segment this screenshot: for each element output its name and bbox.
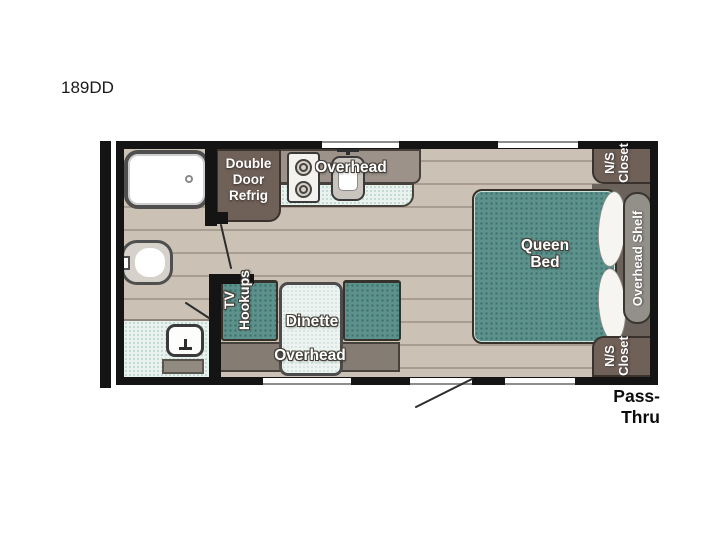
ns-closet-line: Closet xyxy=(617,142,631,184)
overhead-shelf-label: Overhead Shelf xyxy=(630,206,645,311)
tv-hookups-label: TV Hookups xyxy=(222,270,252,330)
ns-closet-line: N/S xyxy=(603,142,617,184)
queen-bed-line: Bed xyxy=(495,254,595,271)
queen-bed-line: Queen xyxy=(495,237,595,254)
entry-door-opening xyxy=(410,378,472,385)
ns-closet-line: N/S xyxy=(603,335,617,377)
tv-hookups-line: Hookups xyxy=(237,270,252,330)
window-opening xyxy=(263,378,351,385)
ns-closet-line: Closet xyxy=(617,335,631,377)
queen-bed-label: Queen Bed xyxy=(495,237,595,271)
dinette-label: Dinette xyxy=(256,313,368,331)
model-number: 189DD xyxy=(61,78,114,98)
floorplan-canvas: 189DD Double Door Refrig xyxy=(0,0,720,540)
window-opening xyxy=(322,141,399,148)
pass-thru-label: Pass-Thru xyxy=(575,386,660,428)
window-opening xyxy=(505,378,575,385)
dinette-overhead-label: Overhead xyxy=(230,347,390,365)
tv-hookups-line: TV xyxy=(222,270,237,330)
ns-closet-bottom-label: N/S Closet xyxy=(603,335,631,377)
kitchen-overhead-label: Overhead xyxy=(296,159,406,177)
window-opening xyxy=(498,141,578,148)
rear-bumper xyxy=(100,141,111,388)
ns-closet-top-label: N/S Closet xyxy=(603,142,631,184)
